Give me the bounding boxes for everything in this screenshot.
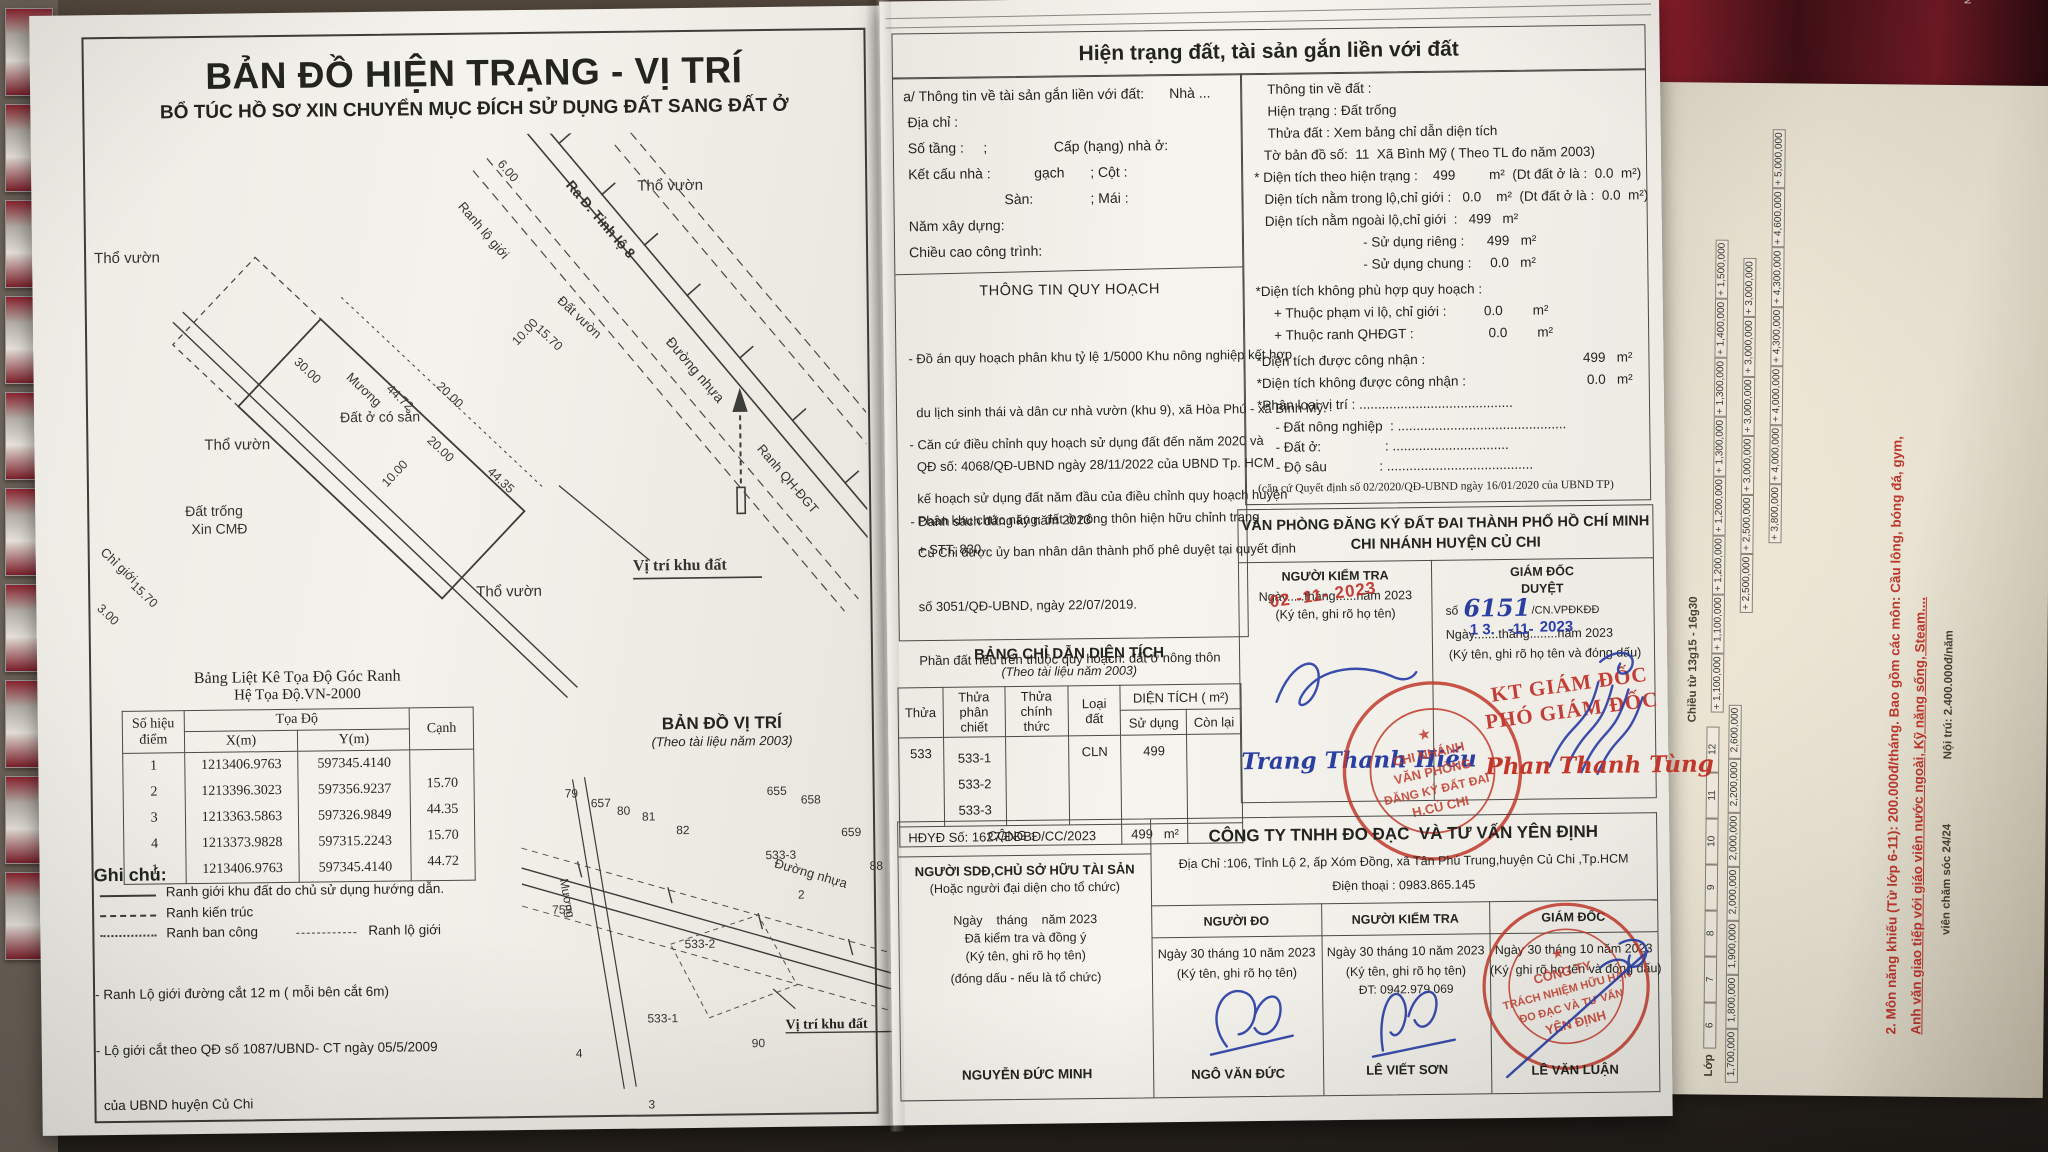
fee-cell: 1,900,000 bbox=[1726, 921, 1740, 975]
fee-cell: + 3,000,000 bbox=[1743, 258, 1757, 317]
col-chinh-thuc-2: chính thức bbox=[1020, 704, 1052, 734]
planning-heading: THÔNG TIN QUY HOẠCH bbox=[896, 280, 1244, 300]
label-muong: Mương bbox=[344, 369, 385, 409]
owner-column: HĐYĐ Số: 1627/ĐĐBĐ/CC/2023 NGƯỜI SDĐ,CHỦ… bbox=[898, 819, 1154, 1100]
page-title: BẢN ĐỒ HIỆN TRẠNG - VỊ TRÍ bbox=[84, 48, 864, 100]
col-y: Y(m) bbox=[298, 729, 410, 751]
loai-dat-value: CLN bbox=[1068, 735, 1122, 825]
note-item: - Chỉ giới mương là 3 m bbox=[97, 1147, 538, 1152]
label-xin-cmd: Xin CMĐ bbox=[191, 520, 247, 537]
asset-house-value: Nhà ... bbox=[1169, 85, 1210, 102]
col-x: X(m) bbox=[184, 730, 298, 752]
boarding-note: Nội trú: 2.400.000đ/năm bbox=[1942, 630, 1955, 759]
date-day-stamp: 1 3. bbox=[1470, 621, 1495, 638]
note-item: - Lộ giới cắt theo QĐ số 1087/UBND- CT n… bbox=[96, 1036, 537, 1060]
parcel-number: 80 bbox=[617, 804, 631, 818]
su-dung-value: 499 bbox=[1121, 734, 1188, 824]
so-suffix: /CN.VPĐKĐĐ bbox=[1531, 604, 1599, 617]
point-id: 3 bbox=[123, 805, 185, 832]
company-name: CÔNG TY TNHH ĐO ĐẠC VÀ TƯ VẤN YÊN ĐỊNH bbox=[1150, 821, 1656, 847]
col-nguoi-kiem-tra: NGƯỜI KIỂM TRA bbox=[1321, 911, 1489, 927]
page-subtitle: BỔ TÚC HỒ SƠ XIN CHUYỂN MỤC ĐÍCH SỬ DỤNG… bbox=[84, 94, 864, 126]
point-id: 4 bbox=[124, 831, 186, 858]
dim-10-00: 10.00 bbox=[379, 457, 411, 489]
parcel-number: 657 bbox=[591, 796, 612, 810]
map-road-lines bbox=[522, 857, 928, 1004]
fee-table-notes: 2. Môn năng khiếu (Từ lớp 6-11): 200.000… bbox=[1883, 164, 2012, 1045]
map-label-duong-nhua: Đường nhựa bbox=[773, 855, 850, 891]
class-cell: 7 bbox=[1704, 956, 1717, 1002]
fee-cell: + 2,500,000 bbox=[1740, 554, 1754, 613]
planning-line: kế hoạch sử dụng đất năm đầu của điều ch… bbox=[910, 486, 1295, 509]
legend-dash-label: Ranh kiến trúc bbox=[166, 904, 253, 920]
edge-length: 15.70 bbox=[412, 828, 475, 855]
col-thua: Thửa bbox=[898, 687, 943, 738]
label-duong-nhua: Đường nhựa bbox=[663, 334, 728, 406]
parcel-number: 659 bbox=[841, 825, 862, 839]
location-underline bbox=[633, 577, 762, 579]
land-nonconforming-road: + Thuộc phạm vi lộ, chỉ giới : 0.0 m² bbox=[1274, 302, 1549, 320]
con-lai-empty bbox=[1187, 734, 1243, 824]
fee-cell: 2,000,000 bbox=[1727, 813, 1741, 867]
legend-dots-label: Ranh ban công bbox=[166, 924, 258, 940]
dim-20-00: 20.00 bbox=[424, 433, 456, 465]
label-dat-trong: Đất trống bbox=[185, 502, 243, 519]
care-note: viên chăm sóc 24/24 bbox=[1940, 824, 1953, 935]
label-chi-gioi: Chỉ giới bbox=[98, 544, 141, 586]
parcel-sketch: Thổ vườn Thổ vườn Thổ vườn Thổ vườn Đất … bbox=[85, 130, 870, 717]
registry-divider bbox=[1239, 557, 1653, 563]
land-info-box: Thông tin về đất : Hiện trạng : Đất trốn… bbox=[1240, 68, 1651, 505]
fee-band-row: + 2,500,000+ 2,500,000+ 3,000,000+ 3,000… bbox=[1736, 183, 1759, 613]
land-recognized-label: *Diện tích được công nhận : bbox=[1256, 352, 1425, 369]
land-private-use: - Sử dụng riêng : 499 m² bbox=[1363, 233, 1537, 250]
owner-divider bbox=[898, 853, 1150, 857]
map-leader-line bbox=[773, 989, 795, 1009]
checker-title: NGƯỜI KIỂM TRA bbox=[1239, 568, 1431, 584]
parcel-number: 658 bbox=[801, 792, 822, 806]
parcel-number: 82 bbox=[676, 823, 690, 837]
land-not-recognized-label: *Diện tích không được công nhận : bbox=[1257, 373, 1466, 391]
label-tho-vuon: Thổ vườn bbox=[476, 583, 542, 601]
asset-address: Địa chỉ : bbox=[907, 114, 958, 131]
sub-parcel: 533-1 bbox=[948, 745, 1002, 772]
fee-cell: + 4,300,000 bbox=[1770, 307, 1784, 366]
fee-schedule-note: Chiều từ 13g15 - 16g30 bbox=[1687, 182, 1705, 722]
parcel-number: 655 bbox=[767, 784, 788, 798]
fee-cell: + 1,300,000 bbox=[1714, 358, 1728, 417]
label-dat-vuon: Đất vườn bbox=[555, 293, 605, 342]
coord-table: Số hiệu điểm Tọa Độ Cạnh X(m) Y(m) 1 121… bbox=[122, 707, 476, 885]
map-canal-lines bbox=[573, 777, 637, 1090]
stamp-star-icon: ★ bbox=[1417, 726, 1432, 743]
edge-length: 44.35 bbox=[411, 802, 474, 829]
note-item: - Ranh Lộ giới đường cắt 12 m ( mỗi bên … bbox=[95, 981, 536, 1005]
point-y: 597356.9237 bbox=[298, 776, 410, 803]
fee-cell: + 2,500,000 bbox=[1740, 495, 1754, 554]
legend-dots-line bbox=[100, 935, 156, 938]
asset-heading: a/ Thông tin về tài sản gắn liền với đất… bbox=[903, 85, 1144, 104]
land-heading: Thông tin về đất : bbox=[1267, 81, 1372, 97]
fee-band-row: + 3,800,000+ 4,000,000+ 4,000,000+ 4,300… bbox=[1764, 183, 1786, 543]
checker2-date: Ngày 30 tháng 10 năm 2023 bbox=[1322, 943, 1490, 959]
checker2-signature bbox=[1362, 971, 1473, 1064]
label-ranh-qh-dgt: Ranh QH-ĐGT bbox=[754, 441, 821, 516]
class-cell: 8 bbox=[1704, 910, 1717, 956]
asset-grade: Cấp (hạng) nhà ở: bbox=[1054, 137, 1168, 154]
so-label: số bbox=[1445, 604, 1458, 618]
fee-cell: 2,600,000 bbox=[1728, 705, 1742, 759]
land-classification: *Phân loại vị trí : ....................… bbox=[1257, 395, 1513, 413]
legend-solid-line bbox=[100, 895, 156, 898]
fee-cell: + 3,000,000 bbox=[1742, 317, 1756, 376]
owner-date-line: Ngày tháng năm 2023 bbox=[899, 911, 1151, 928]
date-year-stamp: 2023 bbox=[1540, 618, 1574, 635]
land-area-out-boundary: Diện tích nằm ngoài lộ,chỉ giới : 499 m² bbox=[1265, 211, 1519, 229]
col-phan-chiet-1: Thửa bbox=[958, 689, 989, 704]
col-su-dung: Sử dụng bbox=[1121, 709, 1187, 735]
map-label-vi-tri-khu-dat: Vị trí khu đất bbox=[785, 1017, 868, 1033]
class-cell: 10 bbox=[1705, 818, 1718, 864]
fee-cell: + 1,100,000 bbox=[1711, 594, 1725, 653]
so-number-handwritten: 6151 bbox=[1463, 593, 1530, 623]
asset-floors: Số tầng : ; bbox=[908, 139, 988, 156]
measurer-date: Ngày 30 tháng 10 năm 2023 bbox=[1152, 945, 1322, 961]
point-x: 1213406.9763 bbox=[184, 751, 298, 779]
fee-cell: + 4,000,000 bbox=[1770, 366, 1784, 425]
point-x: 1213406.9763 bbox=[186, 856, 300, 884]
parcel-number: 2 bbox=[798, 888, 805, 902]
parcel-number: 533-2 bbox=[684, 937, 715, 951]
label-ra-duong-tinh-lo-8: Ra Đ. Tỉnh lộ 8 bbox=[563, 177, 639, 261]
company-box: HĐYĐ Số: 1627/ĐĐBĐ/CC/2023 NGƯỜI SDĐ,CHỦ… bbox=[897, 812, 1660, 1101]
col-point-2: điểm bbox=[139, 732, 167, 747]
fee-cell: 1,700,000 bbox=[1725, 1029, 1739, 1083]
label-vi-tri-khu-dat: Vị trí khu đất bbox=[633, 557, 728, 575]
map-frame: BẢN ĐỒ HIỆN TRẠNG - VỊ TRÍ BỔ TÚC HỒ SƠ … bbox=[81, 28, 878, 1123]
planning-line: - Căn cứ điều chỉnh quy hoạch sử dụng đấ… bbox=[909, 432, 1294, 455]
fee-cell: + 3,000,000 bbox=[1741, 436, 1755, 495]
fee-black-notes: viên chăm sóc 24/24 Nội trú: 2.400.000đ/… bbox=[1936, 165, 1962, 935]
fee-cell: + 4,000,000 bbox=[1769, 425, 1783, 484]
planning-register-list: - Danh sách đăng ký năm 2023 bbox=[910, 512, 1091, 529]
land-area-in-boundary: Diện tích nằm trong lộ,chỉ giới : 0.0 m²… bbox=[1264, 187, 1648, 207]
land-status: Hiện trạng : Đất trống bbox=[1267, 102, 1396, 119]
fee-table-lower-band: Lớp6789101112 1,700,0001,800,0001,900,00… bbox=[1699, 682, 1767, 1083]
fee-cell: + 5,000,000 bbox=[1772, 129, 1786, 188]
land-nonconforming-heading: *Diện tích không phù hợp quy hoạch : bbox=[1256, 281, 1483, 299]
col-dien-tich: DIỆN TÍCH ( m²) bbox=[1120, 684, 1241, 710]
planning-stt: + STT: 830 bbox=[911, 541, 982, 557]
location-map-section: BẢN ĐỒ VỊ TRÍ (Theo tài liệu năm 2003) bbox=[520, 701, 929, 1114]
owner-agree-line: Đã kiểm tra và đồng ý bbox=[899, 929, 1151, 946]
land-not-recognized-value: 0.0 m² bbox=[1587, 371, 1633, 387]
parcel-number: 90 bbox=[752, 1036, 766, 1050]
land-parcel: Thửa đất : Xem bảng chỉ dẫn diện tích bbox=[1268, 123, 1498, 141]
col-con-lai: Còn lại bbox=[1186, 709, 1241, 735]
company-phone: Điện thoại : 0983.865.145 bbox=[1151, 875, 1657, 895]
asset-column: ; Cột : bbox=[1090, 164, 1128, 180]
parcel-number: 79 bbox=[565, 786, 579, 800]
point-x: 1213396.3023 bbox=[185, 778, 299, 805]
dim-15-70: 15.70 bbox=[128, 579, 160, 611]
asset-roof: ; Mái : bbox=[1090, 190, 1128, 206]
land-sheet: Tờ bản đồ số: 11 Xã Bình Mỹ ( Theo TL đo… bbox=[1264, 144, 1595, 163]
fee-cell: + 4,300,000 bbox=[1771, 248, 1785, 307]
col-edge: Cạnh bbox=[410, 707, 474, 750]
dim-30-00: 30.00 bbox=[291, 355, 323, 387]
director-title: GIÁM ĐỐC bbox=[1431, 563, 1653, 580]
magazine-title-text: EDUCATION bbox=[1962, 0, 1972, 6]
label-tho-vuon: Thổ vườn bbox=[94, 249, 160, 267]
legend-solid-label: Ranh giới khu đất do chủ sử dụng hướng d… bbox=[166, 881, 444, 899]
fee-cell: + 4,600,000 bbox=[1772, 189, 1786, 248]
note-item: của UBND huyện Củ Chi bbox=[96, 1092, 537, 1116]
fee-values-row: 1,700,0001,800,0001,900,0002,000,0002,00… bbox=[1721, 683, 1743, 1083]
col-loai-dat: Loại đất bbox=[1067, 685, 1120, 736]
fee-red-note-2: Anh văn giao tiếp với giáo viên nước ngo… bbox=[1908, 165, 1932, 1035]
dim-44-35: 44.35 bbox=[485, 464, 517, 496]
label-tho-vuon: Thổ vườn bbox=[204, 436, 270, 454]
photo-of-land-survey-document: EDUCATION Chiều từ 13g15 - 16g30 + 1,100… bbox=[0, 0, 2048, 1152]
registry-office-box: VĂN PHÒNG ĐĂNG KÝ ĐẤT ĐAI THÀNH PHỐ HỒ C… bbox=[1237, 504, 1657, 803]
fee-cell: + 3,000,000 bbox=[1742, 376, 1756, 435]
point-x: 1213363.5863 bbox=[185, 804, 299, 831]
thua-value: 533 bbox=[899, 737, 945, 827]
fee-cell: 2,000,000 bbox=[1727, 867, 1741, 921]
contract-number: HĐYĐ Số: 1627/ĐĐBĐ/CC/2023 bbox=[908, 828, 1096, 845]
asset-year: Năm xây dựng: bbox=[909, 217, 1005, 234]
label-ranh-lo-gioi: Ranh lộ giới bbox=[455, 199, 512, 262]
director2-name: LÊ VĂN LUẬN bbox=[1491, 1061, 1659, 1078]
owner-subtitle: (Hoặc người đại diện cho tổ chức) bbox=[899, 879, 1151, 896]
legend-dash-line bbox=[100, 915, 156, 918]
point-x: 1213373.9828 bbox=[185, 830, 299, 857]
col-chinh-thuc-1: Thửa bbox=[1021, 689, 1052, 704]
land-agri-line: - Đất nông nghiệp : ....................… bbox=[1275, 416, 1566, 435]
point-y: 597345.4140 bbox=[299, 854, 411, 882]
legend-dash2-label: Ranh lộ giới bbox=[368, 922, 441, 938]
class-label: Lớp bbox=[1703, 1054, 1715, 1076]
fee-cell: + 1,300,000 bbox=[1713, 417, 1727, 476]
land-recognized-value: 499 m² bbox=[1583, 349, 1633, 365]
class-cell: 6 bbox=[1703, 1002, 1716, 1048]
document-right-page: Hiện trạng đất, tài sản gắn liền với đất… bbox=[879, 0, 1673, 1126]
notes-heading: Ghi chú: bbox=[94, 864, 167, 886]
date-month-stamp: -11- bbox=[1508, 621, 1534, 638]
location-leader-line bbox=[559, 484, 650, 561]
point-y: 597326.9849 bbox=[299, 802, 411, 829]
edge-length: 15.70 bbox=[411, 776, 474, 803]
fee-band-row: + 1,100,000+ 1,100,000+ 1,200,000+ 1,200… bbox=[1707, 183, 1731, 713]
asset-floor: Sàn: bbox=[1004, 191, 1033, 207]
point-y: 597345.4140 bbox=[298, 750, 410, 778]
map-dashed-lines bbox=[521, 843, 927, 1026]
document-left-page: BẢN ĐỒ HIỆN TRẠNG - VỊ TRÍ BỔ TÚC HỒ SƠ … bbox=[29, 6, 893, 1136]
owner-title: NGƯỜI SDĐ,CHỦ SỞ HỮU TÀI SẢN bbox=[899, 861, 1151, 879]
asset-height: Chiều cao công trình: bbox=[909, 243, 1042, 261]
asset-structure: Kết cấu nhà : bbox=[908, 165, 991, 182]
class-cell: 11 bbox=[1706, 772, 1719, 818]
registry-line-2: CHI NHÁNH HUYỆN CỦ CHI bbox=[1239, 533, 1653, 554]
survey-document: BẢN ĐỒ HIỆN TRẠNG - VỊ TRÍ BỔ TÚC HỒ SƠ … bbox=[21, 0, 1683, 1152]
director-name: Phan Thanh Tùng bbox=[1485, 751, 1665, 780]
fee-cell: + 1,200,000 bbox=[1712, 535, 1726, 594]
label-tho-vuon: Thổ vườn bbox=[637, 177, 703, 195]
land-depth-line: - Độ sâu : .............................… bbox=[1276, 457, 1533, 475]
company-address: Địa Chỉ :106, Tỉnh Lộ 2, ấp Xóm Đồng, xã… bbox=[1151, 851, 1657, 871]
fee-cell: + 1,400,000 bbox=[1714, 299, 1728, 358]
fee-cell: 2,200,000 bbox=[1728, 759, 1742, 813]
owner-sign-note: (Ký tên, ghi rõ họ tên) bbox=[900, 947, 1152, 964]
parcel-number: 81 bbox=[642, 809, 656, 823]
fee-cell: + 1,200,000 bbox=[1713, 476, 1727, 535]
fee-cell: + 3,800,000 bbox=[1768, 484, 1782, 543]
sub-parcel: 533-2 bbox=[948, 771, 1002, 798]
checker-sign-note: (Ký tên, ghi rõ họ tên) bbox=[1239, 606, 1431, 622]
sketch-labels: Thổ vườn Thổ vườn Thổ vườn Thổ vườn Đất … bbox=[93, 174, 823, 605]
point-id: 2 bbox=[123, 779, 185, 806]
sketch-dimensions: 6.00 44.72 30.00 20.00 20.00 10.00 10.00… bbox=[89, 156, 569, 628]
land-nonconforming-qh: + Thuộc ranh QHĐGT : 0.0 m² bbox=[1274, 324, 1553, 342]
measurer-name: NGÔ VĂN ĐỨC bbox=[1153, 1065, 1323, 1082]
land-shared-use: - Sử dụng chung : 0.0 m² bbox=[1363, 255, 1536, 272]
col-nguoi-do: NGƯỜI ĐO bbox=[1151, 913, 1321, 929]
class-cell: 9 bbox=[1705, 864, 1718, 910]
section-divider bbox=[895, 266, 1243, 275]
col-phan-chiet-2: phân chiết bbox=[959, 704, 988, 734]
parcel-number: 3 bbox=[648, 1097, 655, 1111]
parcel-number: 533-1 bbox=[647, 1011, 678, 1025]
background-paper-right: Chiều từ 13g15 - 16g30 + 1,100,000+ 1,10… bbox=[1647, 82, 2048, 1098]
table-row: 533 533-1533-2533-3 CLN 499 bbox=[899, 734, 1243, 827]
registry-line-1: VĂN PHÒNG ĐĂNG KÝ ĐẤT ĐAI THÀNH PHỐ HỒ C… bbox=[1238, 513, 1652, 534]
measurer-signature bbox=[1196, 975, 1307, 1066]
dim-3-00: 3.00 bbox=[94, 601, 121, 628]
chinh-thuc-empty bbox=[1005, 736, 1069, 826]
land-basis-note: (căn cứ Quyết định số 02/2020/QĐ-UBND ng… bbox=[1258, 478, 1614, 495]
parcel-number: 4 bbox=[576, 1046, 583, 1060]
road-boundary-lines bbox=[473, 130, 870, 616]
fee-cell: + 1,500,000 bbox=[1715, 240, 1729, 299]
table-row: 1 1213406.9763 597345.4140 15.70 44.35 1… bbox=[123, 749, 474, 780]
dim-15-70: 15.70 bbox=[533, 322, 565, 354]
point-id: 1 bbox=[123, 753, 185, 780]
land-res-line: - Đất ở: : .............................… bbox=[1275, 437, 1508, 455]
asset-wall: gạch bbox=[1034, 164, 1065, 180]
asset-planning-box: a/ Thông tin về tài sản gắn liền với đất… bbox=[892, 73, 1249, 641]
col-point-1: Số hiệu bbox=[132, 716, 175, 732]
col-coord: Tọa Độ bbox=[184, 708, 410, 732]
dim-20-00: 20.00 bbox=[434, 379, 466, 411]
fee-class-row: Lớp6789101112 bbox=[1699, 682, 1721, 1076]
legend-dash2-line bbox=[296, 932, 356, 934]
land-area-current: * Diện tích theo hiện trạng : 499 m² (Dt… bbox=[1254, 165, 1641, 185]
owner-stamp-note: (đóng dấu - nếu là tổ chức) bbox=[900, 969, 1152, 986]
notes-list: - Ranh Lộ giới đường cắt 12 m ( mỗi bên … bbox=[95, 944, 545, 1152]
dim-6-00: 6.00 bbox=[495, 157, 522, 185]
owner-name: NGUYỄN ĐỨC MINH bbox=[901, 1065, 1153, 1083]
fee-cell: 1,800,000 bbox=[1725, 975, 1739, 1029]
checker2-name: LÊ VIẾT SƠN bbox=[1323, 1061, 1491, 1078]
location-map: 79 657 80 81 82 655 658 659 88 533-3 2 7… bbox=[520, 745, 928, 1114]
point-y: 597315.2243 bbox=[299, 828, 411, 855]
edge-length: 44.72 bbox=[412, 854, 475, 881]
